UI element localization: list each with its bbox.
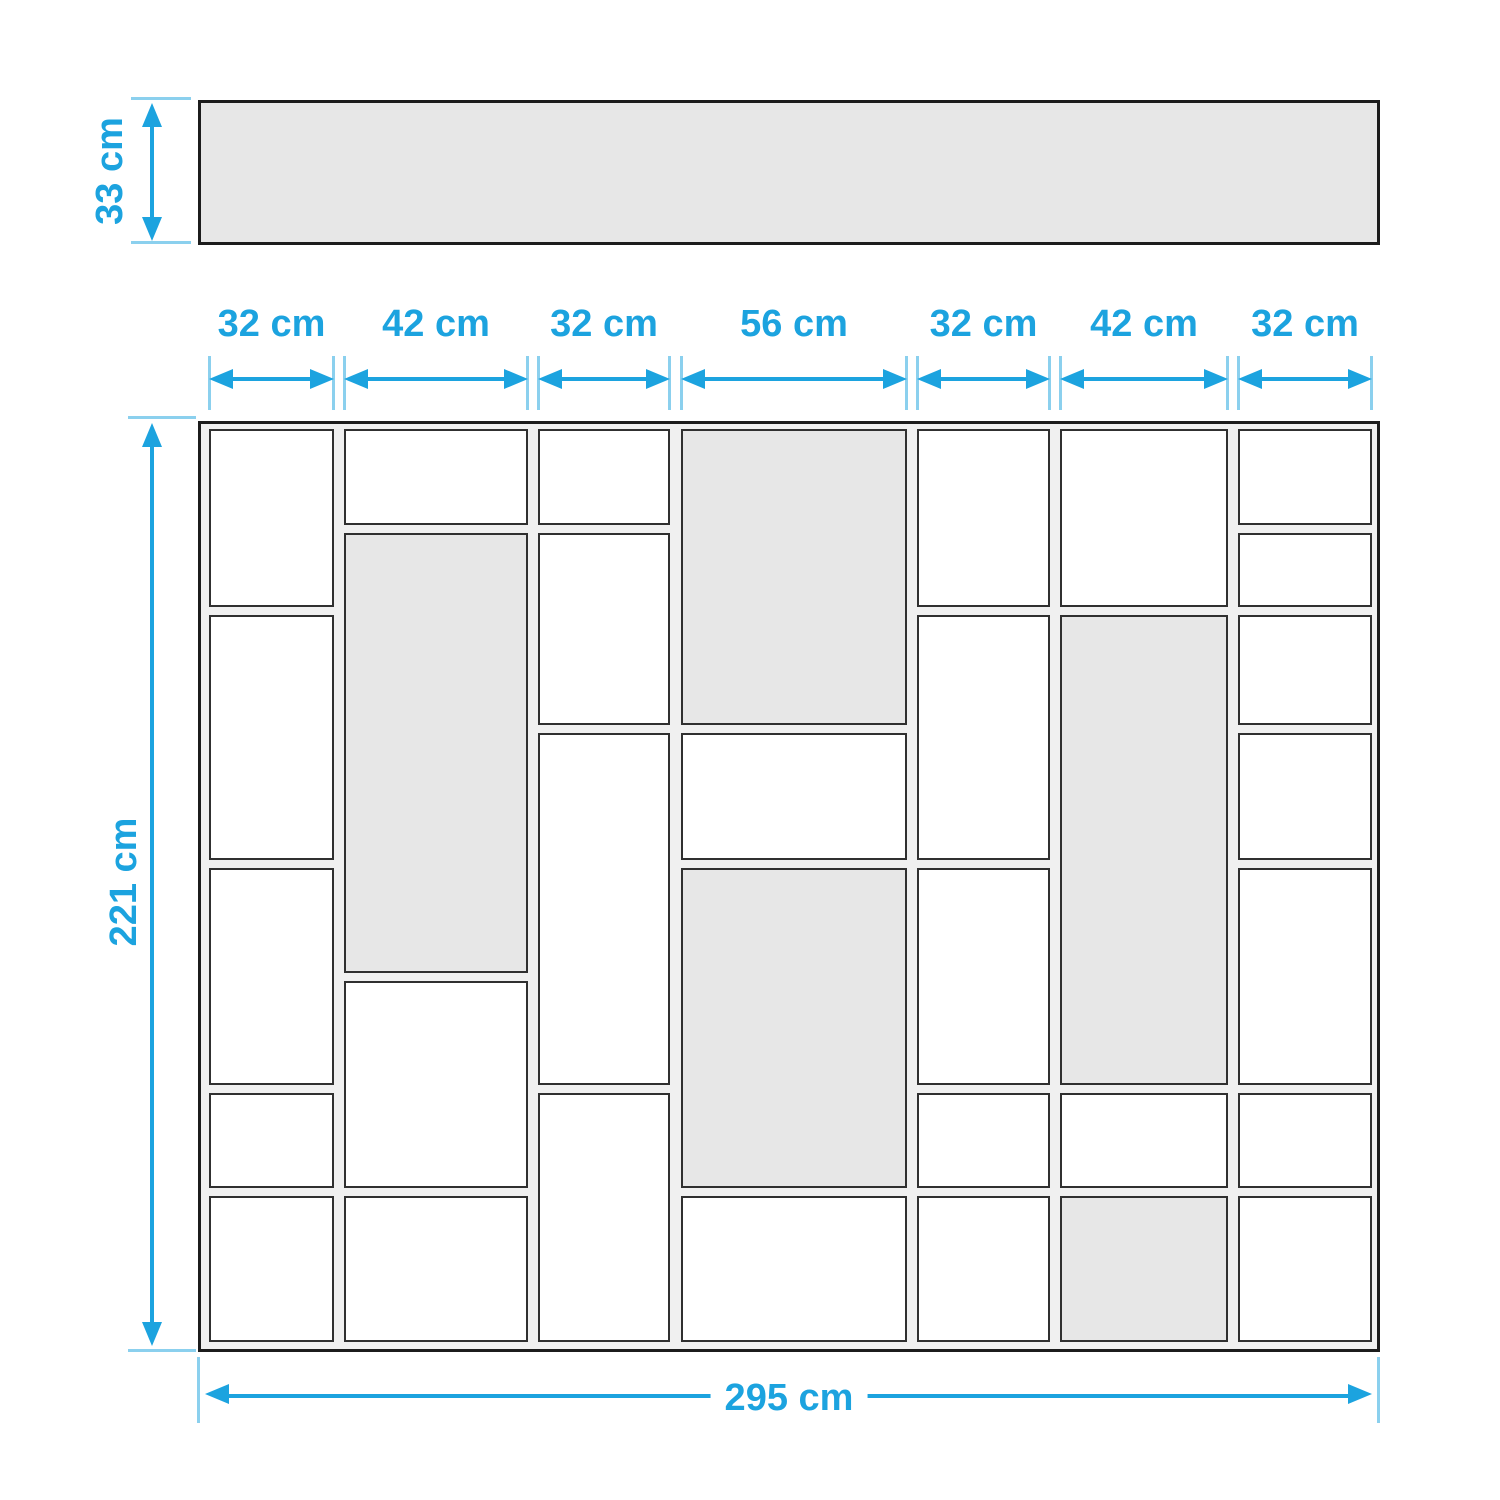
dimension-arrow-line bbox=[1256, 377, 1354, 381]
dimension-arrow-line bbox=[935, 377, 1032, 381]
shelf-compartment-open bbox=[209, 429, 334, 607]
shelf-compartment-backed bbox=[1060, 1196, 1228, 1342]
dimension-arrow-line bbox=[150, 441, 154, 1328]
arrowhead-left-icon bbox=[205, 1384, 229, 1404]
width-dimension-label: 32 cm bbox=[930, 305, 1038, 343]
dimension-arrow-line bbox=[1078, 377, 1210, 381]
arrowhead-left-icon bbox=[209, 369, 233, 389]
shelf-compartment-open bbox=[1060, 429, 1228, 607]
arrowhead-left-icon bbox=[1060, 369, 1084, 389]
arrowhead-left-icon bbox=[681, 369, 705, 389]
shelf-compartment-open bbox=[538, 733, 670, 1085]
shelf-compartment-open bbox=[1238, 733, 1372, 860]
shelf-compartment-open bbox=[538, 533, 670, 725]
shelf-compartment-open bbox=[209, 868, 334, 1085]
shelf-compartment-open bbox=[344, 981, 528, 1188]
arrowhead-left-icon bbox=[917, 369, 941, 389]
dimension-tick bbox=[197, 1357, 200, 1423]
shelf-compartment-open bbox=[1238, 1196, 1372, 1342]
dimension-arrow-line bbox=[362, 377, 510, 381]
shelf-compartment-open bbox=[1238, 868, 1372, 1085]
arrowhead-down-icon bbox=[142, 217, 162, 241]
shelf-compartment-open bbox=[209, 615, 334, 860]
shelf-compartment-open bbox=[1238, 429, 1372, 525]
dimension-arrow-line bbox=[150, 121, 154, 223]
width-dimension-label: 56 cm bbox=[740, 305, 848, 343]
dimension-arrow-line bbox=[227, 377, 316, 381]
dimension-arrow-line bbox=[556, 377, 652, 381]
arrowhead-right-icon bbox=[1348, 1384, 1372, 1404]
arrowhead-right-icon bbox=[310, 369, 334, 389]
diagram-canvas: 33 cm 32 cm42 cm32 cm56 cm32 cm42 cm32 c… bbox=[0, 0, 1500, 1500]
shelf-compartment-backed bbox=[681, 429, 907, 725]
shelf-compartment-backed bbox=[344, 533, 528, 973]
top-panel-side-view bbox=[198, 100, 1380, 245]
arrowhead-right-icon bbox=[1026, 369, 1050, 389]
shelf-compartment-open bbox=[538, 429, 670, 525]
shelf-compartment-open bbox=[209, 1093, 334, 1188]
arrowhead-left-icon bbox=[1238, 369, 1262, 389]
arrowhead-left-icon bbox=[344, 369, 368, 389]
dimension-tick bbox=[128, 416, 196, 419]
arrowhead-up-icon bbox=[142, 423, 162, 447]
dimension-tick bbox=[1377, 1357, 1380, 1423]
arrowhead-right-icon bbox=[504, 369, 528, 389]
arrowhead-right-icon bbox=[883, 369, 907, 389]
shelf-compartment-open bbox=[209, 1196, 334, 1342]
width-dimension-label: 42 cm bbox=[382, 305, 490, 343]
shelf-compartment-open bbox=[1238, 533, 1372, 607]
shelf-unit-front-view bbox=[198, 421, 1380, 1352]
shelf-compartment-open bbox=[1238, 615, 1372, 725]
arrowhead-down-icon bbox=[142, 1322, 162, 1346]
width-dimension-label: 42 cm bbox=[1090, 305, 1198, 343]
width-dimension-label: 32 cm bbox=[550, 305, 658, 343]
shelf-compartment-open bbox=[1238, 1093, 1372, 1188]
arrowhead-up-icon bbox=[142, 103, 162, 127]
shelf-compartment-open bbox=[681, 733, 907, 860]
total-width-dimension-label: 295 cm bbox=[711, 1379, 868, 1417]
shelf-compartment-open bbox=[917, 868, 1050, 1085]
dimension-tick bbox=[131, 97, 191, 100]
shelf-compartment-open bbox=[917, 1196, 1050, 1342]
depth-dimension-label: 33 cm bbox=[91, 117, 129, 225]
shelf-compartment-open bbox=[917, 1093, 1050, 1188]
dimension-arrow-line bbox=[699, 377, 889, 381]
arrowhead-left-icon bbox=[538, 369, 562, 389]
shelf-compartment-open bbox=[538, 1093, 670, 1342]
shelf-compartment-backed bbox=[681, 868, 907, 1188]
width-dimension-label: 32 cm bbox=[1251, 305, 1359, 343]
height-dimension-label: 221 cm bbox=[105, 818, 143, 947]
arrowhead-right-icon bbox=[1348, 369, 1372, 389]
shelf-compartment-open bbox=[344, 1196, 528, 1342]
shelf-compartment-open bbox=[1060, 1093, 1228, 1188]
arrowhead-right-icon bbox=[1204, 369, 1228, 389]
shelf-compartment-open bbox=[917, 615, 1050, 860]
arrowhead-right-icon bbox=[646, 369, 670, 389]
shelf-compartment-backed bbox=[1060, 615, 1228, 1085]
shelf-compartment-open bbox=[681, 1196, 907, 1342]
shelf-compartment-open bbox=[917, 429, 1050, 607]
shelf-compartment-open bbox=[344, 429, 528, 525]
width-dimension-label: 32 cm bbox=[218, 305, 326, 343]
dimension-tick bbox=[131, 241, 191, 244]
dimension-tick bbox=[128, 1349, 196, 1352]
